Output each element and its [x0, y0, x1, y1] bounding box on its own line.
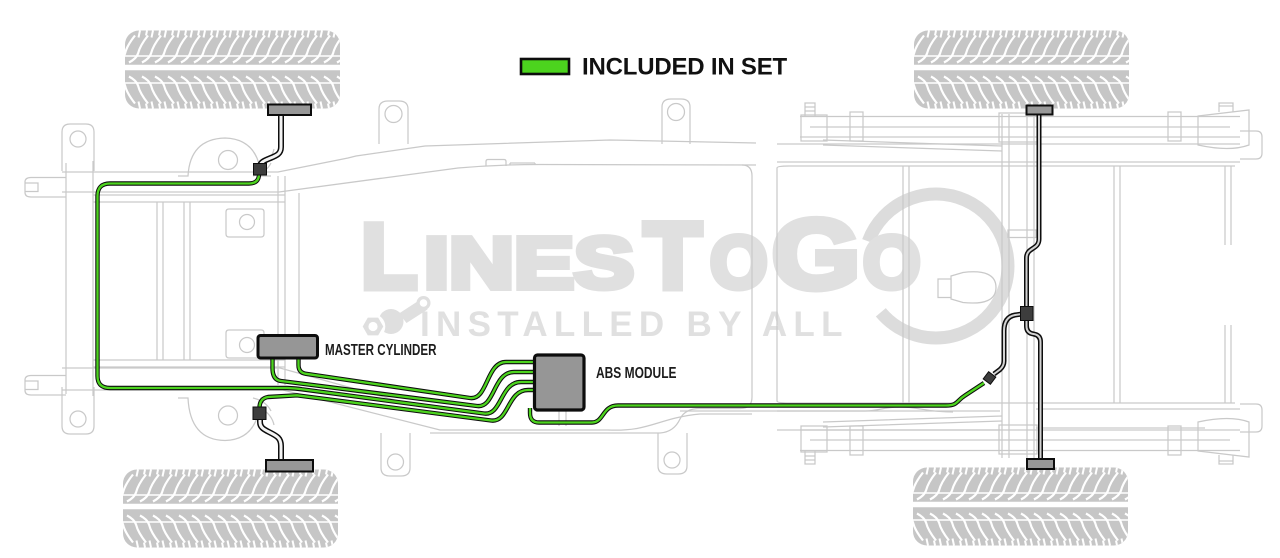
svg-text:INES: INES [424, 224, 634, 304]
svg-text:T: T [644, 203, 701, 308]
svg-text:ABS MODULE: ABS MODULE [596, 365, 677, 382]
svg-text:G: G [772, 199, 860, 309]
svg-text:MASTER CYLINDER: MASTER CYLINDER [325, 342, 437, 359]
svg-text:O: O [710, 221, 768, 304]
svg-text:INSTALLED BY ALL: INSTALLED BY ALL [420, 305, 849, 344]
svg-text:O: O [863, 221, 921, 304]
svg-text:L: L [361, 206, 417, 308]
svg-text:INCLUDED IN SET: INCLUDED IN SET [582, 54, 788, 81]
